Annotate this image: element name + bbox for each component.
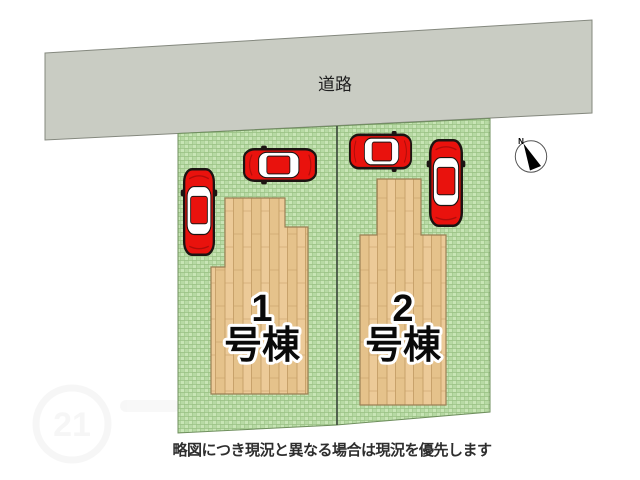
watermark-logo: 21 bbox=[36, 388, 180, 460]
compass-icon: N bbox=[515, 137, 546, 172]
building-1-number: 1 bbox=[251, 288, 272, 330]
caption-text: 略図につき現況と異なる場合は現況を優先します bbox=[172, 441, 492, 459]
site-plan-drawing: 道路 1 号棟 2 号棟 N 21 bbox=[0, 0, 640, 480]
compass-north-label: N bbox=[518, 137, 524, 146]
car-icon-lot1-horizontal bbox=[244, 146, 316, 185]
car-icon-lot2-horizontal bbox=[350, 131, 411, 172]
building-1-suffix: 号棟 bbox=[224, 325, 301, 367]
watermark-text-blur bbox=[120, 400, 180, 412]
watermark-number: 21 bbox=[53, 406, 91, 444]
car-icon-lot1-vertical bbox=[181, 169, 217, 254]
car-icon-lot2-vertical bbox=[427, 140, 466, 225]
building-2-suffix: 号棟 bbox=[365, 325, 442, 367]
building-2-number: 2 bbox=[392, 288, 413, 330]
site-plan-page: 道路 1 号棟 2 号棟 N 21 bbox=[0, 0, 640, 480]
road-label: 道路 bbox=[318, 75, 352, 94]
